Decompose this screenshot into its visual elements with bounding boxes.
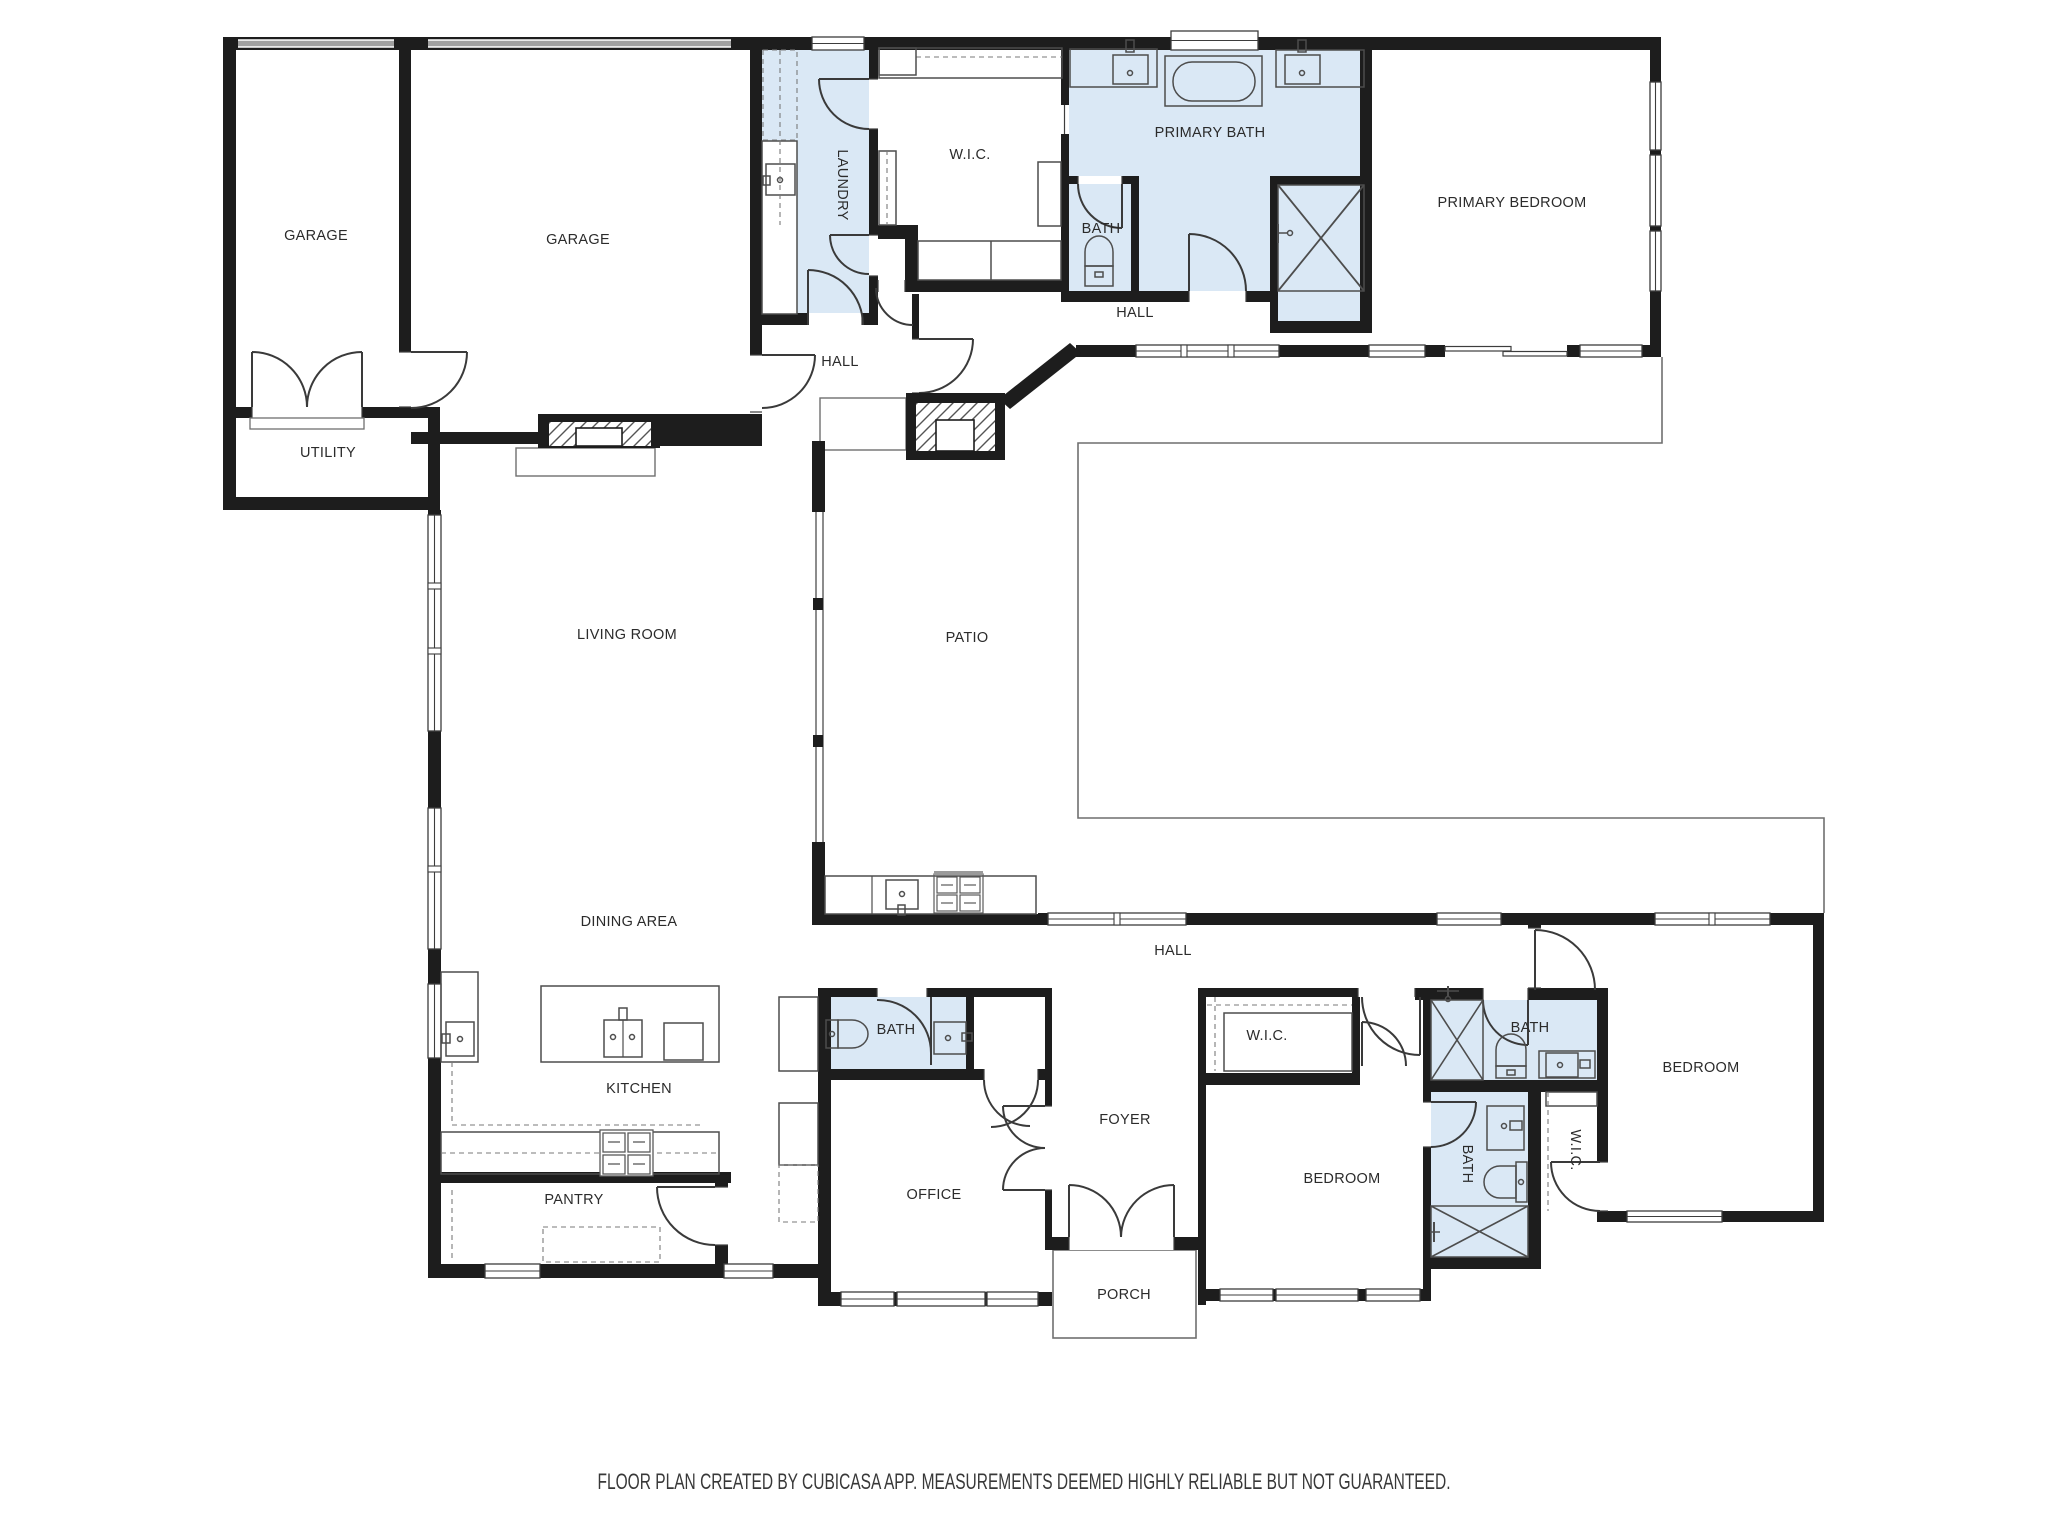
svg-text:LAUNDRY: LAUNDRY — [834, 149, 850, 220]
svg-text:GARAGE: GARAGE — [546, 232, 610, 248]
svg-text:PORCH: PORCH — [1097, 1287, 1151, 1303]
svg-text:UTILITY: UTILITY — [300, 445, 356, 461]
svg-text:HALL: HALL — [821, 354, 858, 370]
svg-text:BATH: BATH — [877, 1022, 916, 1038]
svg-text:PRIMARY BEDROOM: PRIMARY BEDROOM — [1438, 195, 1587, 211]
svg-text:LIVING ROOM: LIVING ROOM — [577, 627, 677, 643]
svg-text:W.I.C.: W.I.C. — [949, 147, 990, 163]
svg-text:GARAGE: GARAGE — [284, 228, 348, 244]
svg-text:DINING AREA: DINING AREA — [581, 914, 678, 930]
svg-text:BEDROOM: BEDROOM — [1303, 1171, 1380, 1187]
svg-text:PRIMARY BATH: PRIMARY BATH — [1155, 125, 1266, 141]
svg-text:PATIO: PATIO — [946, 630, 989, 646]
svg-text:OFFICE: OFFICE — [907, 1187, 962, 1203]
svg-text:PANTRY: PANTRY — [544, 1192, 603, 1208]
svg-text:BATH: BATH — [1459, 1145, 1475, 1184]
svg-text:BATH: BATH — [1511, 1020, 1550, 1036]
svg-text:HALL: HALL — [1116, 305, 1153, 321]
svg-text:W.I.C.: W.I.C. — [1567, 1129, 1583, 1170]
svg-text:KITCHEN: KITCHEN — [606, 1081, 672, 1097]
svg-text:BATH: BATH — [1082, 221, 1121, 237]
svg-text:HALL: HALL — [1154, 943, 1191, 959]
svg-text:FOYER: FOYER — [1099, 1112, 1150, 1128]
svg-text:W.I.C.: W.I.C. — [1246, 1028, 1287, 1044]
svg-text:FLOOR PLAN CREATED BY CUBICASA: FLOOR PLAN CREATED BY CUBICASA APP. MEAS… — [598, 1469, 1451, 1494]
svg-text:BEDROOM: BEDROOM — [1662, 1060, 1739, 1076]
